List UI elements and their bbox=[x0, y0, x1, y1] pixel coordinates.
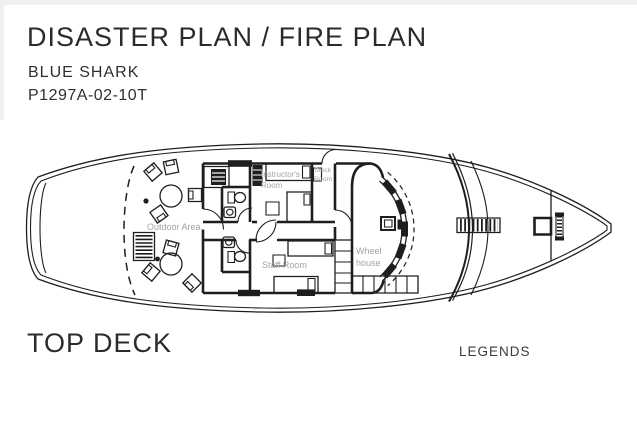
chair-icon bbox=[183, 274, 201, 292]
companionway-stairs-icon bbox=[204, 167, 229, 188]
chair-icon bbox=[144, 163, 162, 181]
wheelhouse-front bbox=[380, 172, 414, 285]
stern-transom-line bbox=[40, 183, 46, 273]
stock-room-label-line2: Room bbox=[314, 176, 332, 183]
room-labels: Outdoor Area Instructor's Room Stock Roo… bbox=[147, 167, 382, 270]
chair-icon bbox=[163, 159, 178, 174]
chair-icon bbox=[142, 263, 160, 281]
chair-icon bbox=[150, 205, 168, 223]
toilet-room-top bbox=[224, 192, 246, 218]
stock-room-label-line1: Stock bbox=[314, 167, 332, 174]
door-arc bbox=[335, 210, 352, 227]
toilet-icon bbox=[235, 252, 246, 262]
door-arc bbox=[256, 222, 276, 242]
grating-bench-icon bbox=[134, 233, 160, 262]
door-arc bbox=[203, 209, 224, 230]
door-arc bbox=[236, 240, 249, 253]
stairs-grid-icon bbox=[335, 240, 352, 293]
sink-icon bbox=[223, 237, 235, 248]
aft-canopy-dashed-edge bbox=[124, 166, 135, 295]
deck-hatch-icon bbox=[535, 218, 552, 235]
wheel-house-label-line1: Wheel bbox=[356, 246, 382, 256]
bed-icon bbox=[274, 277, 318, 294]
toilet-tank bbox=[228, 192, 235, 203]
door-arc bbox=[322, 150, 336, 164]
windlass-icon bbox=[555, 213, 564, 241]
nightstand-icon bbox=[266, 202, 279, 215]
bed-icon bbox=[287, 192, 312, 222]
outdoor-area-label: Outdoor Area bbox=[147, 222, 201, 232]
sink-icon bbox=[224, 207, 236, 218]
toilet-room-bottom bbox=[223, 237, 246, 263]
deck-plan-drawing: Outdoor Area Instructor's Room Stock Roo… bbox=[0, 0, 637, 443]
round-table-icon bbox=[160, 185, 182, 207]
deck-ladder-icon bbox=[457, 218, 500, 233]
wall-window-band bbox=[238, 290, 260, 296]
deck-post-dot bbox=[143, 198, 148, 203]
bed-icon bbox=[288, 241, 333, 256]
toilet-icon bbox=[235, 193, 246, 203]
toilet-tank bbox=[228, 252, 235, 263]
instructors-room-label-line2: Room bbox=[261, 181, 283, 190]
round-table-icon bbox=[160, 253, 182, 275]
fire-plan-page: DISASTER PLAN / FIRE PLAN BLUE SHARK P12… bbox=[0, 0, 637, 443]
foredeck bbox=[449, 153, 564, 301]
wall-window-band bbox=[228, 160, 252, 167]
staff-room-label: Staff Room bbox=[262, 260, 307, 270]
door-arc bbox=[256, 220, 276, 240]
wheel-house-label-line2: house bbox=[356, 258, 381, 268]
chair-icon bbox=[189, 189, 202, 202]
instructors-room-label-line1: Instructor's bbox=[261, 170, 300, 179]
helm-console-icon bbox=[381, 217, 401, 230]
